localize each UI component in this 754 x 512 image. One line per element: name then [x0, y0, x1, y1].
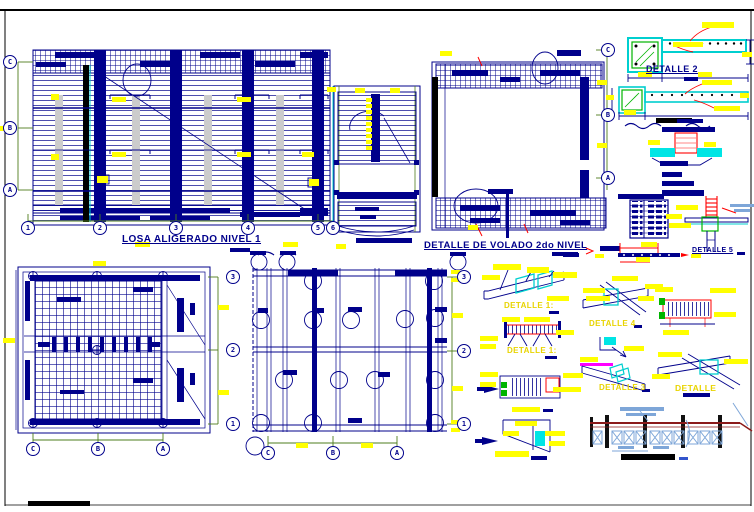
- stair-plan: [333, 86, 420, 243]
- grid-bubble-mesh-3: 3: [226, 270, 240, 284]
- detail-elev1: [504, 321, 561, 346]
- detail-iso1: [484, 270, 564, 299]
- grid-bubble-losa-C: C: [3, 55, 17, 69]
- detail-col5-title: DETALLE 5: [692, 247, 733, 254]
- magenta-marker: [580, 363, 613, 366]
- grid-bubble-beams-A: A: [390, 446, 404, 460]
- grid-bubble-beams-1: 1: [457, 417, 471, 431]
- grid-bubble-mesh-2: 2: [226, 343, 240, 357]
- grid-bubble-mesh-B: B: [91, 442, 105, 456]
- plan-beam-layout: [246, 251, 466, 455]
- grid-bubble-losa-A: A: [3, 183, 17, 197]
- plan-mesh-slab: [16, 267, 218, 442]
- grid-bubble-beams-B: B: [326, 446, 340, 460]
- detail-d2-title: DETALLE 2: [646, 64, 698, 74]
- grid-bubble-losa-6: 6: [326, 221, 340, 235]
- cad-linework: [0, 0, 754, 512]
- detail-iso4-title: DETALLE 4: [589, 319, 636, 328]
- plan2-title: DETALLE DE VOLADO 2do NIVEL: [424, 240, 587, 251]
- plan1-wall-strip: [83, 65, 89, 222]
- detail-elev1-title: DETALLE 1:: [507, 346, 557, 355]
- grid-bubble-losa-1: 1: [21, 221, 35, 235]
- grid-bubble-losa-2: 2: [93, 221, 107, 235]
- grid-bubble-losa-5: 5: [311, 221, 325, 235]
- plan1-title: LOSA ALIGERADO NIVEL 1: [122, 234, 261, 245]
- detail-iso6-title: DETALLE: [675, 383, 716, 393]
- grid-bubble-mesh-A: A: [156, 442, 170, 456]
- channel-bars: [662, 172, 704, 196]
- railing-title-bar: [621, 454, 675, 460]
- grid-bubble-beams-3: 3: [457, 270, 471, 284]
- grid-bubble-beams-2: 2: [457, 344, 471, 358]
- plan4-fills: [250, 251, 466, 432]
- plan4-beam-doubles: [253, 268, 447, 432]
- detail-iso3-title: DETALLE 3: [599, 383, 646, 392]
- detail-railing: [590, 403, 752, 460]
- grid-bubble-mesh-1: 1: [226, 417, 240, 431]
- grid-bubble-volado-B: B: [601, 108, 615, 122]
- detail-stirrup-section: [659, 298, 715, 327]
- plan2-wall-strip: [432, 77, 438, 197]
- title-underline-dashes: [531, 252, 745, 460]
- rebar-schedule-table: [618, 194, 668, 238]
- grid-bubble-losa-3: 3: [169, 221, 183, 235]
- drawing-sheet: LOSA ALIGERADO NIVEL 1 DETALLE DE VOLADO…: [0, 0, 754, 512]
- grid-bubble-volado-A: A: [601, 171, 615, 185]
- light-blue-notes: [730, 204, 754, 212]
- dotted-scale-bar: [618, 253, 689, 257]
- grid-bubble-losa-4: 4: [241, 221, 255, 235]
- detail-iso1-title: DETALLE 1:: [504, 301, 554, 310]
- plan-volado: [432, 50, 620, 256]
- grid-bubble-mesh-C: C: [26, 442, 40, 456]
- stair-bottom-curve: [338, 226, 414, 236]
- grid-bubble-losa-B: B: [3, 121, 17, 135]
- grid-bubble-volado-C: C: [601, 43, 615, 57]
- grid-bubble-beams-C: C: [261, 446, 275, 460]
